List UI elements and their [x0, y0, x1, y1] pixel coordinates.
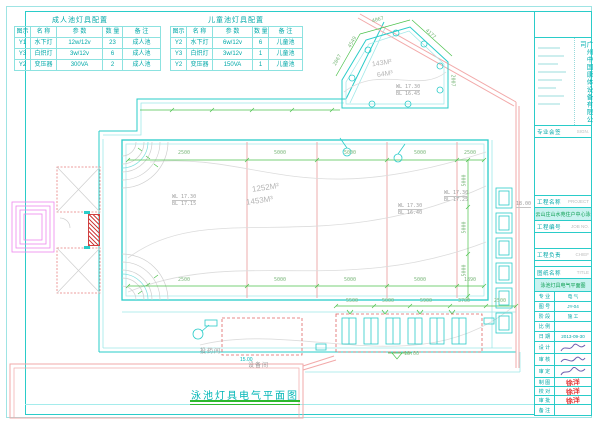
table-cell: 成人池 [123, 49, 161, 60]
signature-label: 审 核 [535, 354, 555, 365]
table-cell: Y3 [171, 49, 187, 60]
dim-label: 5000 [274, 151, 286, 156]
table-cell: 儿童池 [269, 49, 303, 60]
table-cell: Y1 [15, 38, 31, 49]
signature-row: 设 计 [535, 342, 591, 354]
dim-label: 5500 [346, 299, 358, 304]
chief-label: 工程负责 [537, 251, 561, 259]
info-row: 日 期 2013-09-30 [535, 332, 591, 342]
table-cell: 6 [103, 49, 123, 60]
signature-label: 设 计 [535, 342, 555, 353]
dim-label: 2500 [178, 278, 190, 283]
table-header: 参 数 [213, 27, 253, 38]
contour-lines [128, 72, 514, 346]
corner-arcs [122, 142, 168, 300]
dim-label: 5000 [382, 299, 394, 304]
water-level-label: WL 17.30BL 17.15 [172, 194, 196, 208]
info-value [555, 322, 591, 331]
table-cell: 成人池 [123, 38, 161, 49]
child-lighting-table: 图示 名 称 参 数 数 量 备 注 Y2 水下灯 6w/12v 6 儿童池 Y… [170, 26, 303, 71]
table-cell: Y2 [15, 60, 31, 71]
drawing-title-en: TITLE [577, 270, 589, 275]
title-block: 广州中国康体设备有限公司 专业会签 SIGN. 工程名称 PROJECT 白云山… [534, 11, 592, 416]
drawing-name-value: 泳池灯具电气平面图 [535, 279, 591, 292]
job-no-label: 工程编号 [537, 223, 561, 231]
info-row: 图 号 JY-04 [535, 302, 591, 312]
job-no-en: JOB NO. [571, 224, 589, 229]
dim-label: 5000 [274, 278, 286, 283]
table-header: 备 注 [123, 27, 161, 38]
table-cell: 水下灯 [31, 38, 57, 49]
hatched-wall [88, 214, 100, 246]
table-cell: 6w/12v [213, 38, 253, 49]
job-no-row: 工程编号 JOB NO. [535, 221, 591, 233]
caption-underline [190, 400, 300, 402]
dim-label: 5000 [463, 221, 468, 233]
table-header: 名 称 [31, 27, 57, 38]
table-cell: 3w/12v [57, 49, 103, 60]
info-row: 专 业 电 气 [535, 292, 591, 302]
lane-joint-lines [247, 142, 457, 298]
stamp-label: 审 批 [535, 396, 555, 404]
table-cell: 12w/12v [57, 38, 103, 49]
table-cell: 水下灯 [187, 38, 213, 49]
table-cell: 23 [103, 38, 123, 49]
info-value: 施 工 [555, 312, 591, 321]
water-level-label: WL 17.30BL 16.45 [396, 84, 420, 98]
table-cell: 1 [253, 60, 269, 71]
sign-label: 专业会签 [537, 128, 561, 136]
table-cell: 1 [253, 49, 269, 60]
sign-row: 专业会签 SIGN. [535, 126, 591, 138]
stamp-row: 审 批 徐洋 [535, 396, 591, 405]
table-cell: 变压器 [187, 60, 213, 71]
signature-scribble [555, 366, 591, 377]
company-info-lines [535, 38, 575, 125]
table-cell: 成人池 [123, 60, 161, 71]
project-en: PROJECT [568, 199, 589, 204]
stamp-label: 校 对 [535, 387, 555, 395]
table-header: 备 注 [269, 27, 303, 38]
sign-en: SIGN. [577, 129, 589, 134]
table-cell: 150VA [213, 60, 253, 71]
child-table-title: 儿童池灯具配置 [208, 15, 264, 25]
cad-drawing-sheet: 成人池灯具配置 图示 名 称 参 数 数 量 备 注 Y1 水下灯 12w/12… [0, 0, 600, 424]
dim-label: 2007 [450, 74, 455, 86]
info-value: 电 气 [555, 292, 591, 301]
table-header: 名 称 [187, 27, 213, 38]
dim-label: 2500 [178, 151, 190, 156]
deck-level-right-label: 18.00 [516, 201, 531, 208]
table-cell: 白炽灯 [187, 49, 213, 60]
project-label: 工程名称 [537, 198, 561, 206]
drawing-title-label: 图纸名称 [537, 269, 561, 277]
underwater-light-symbols [193, 30, 443, 339]
dim-label: 5000 [463, 264, 468, 276]
table-header: 图示 [171, 27, 187, 38]
info-value: JY-04 [555, 302, 591, 311]
signature-scribble [555, 342, 591, 353]
table-cell: 3w/12v [213, 49, 253, 60]
deck-level-label: 18.00 [404, 352, 419, 357]
table-cell: 6 [253, 38, 269, 49]
info-label: 专 业 [535, 292, 555, 301]
main-pool-border [122, 140, 488, 300]
info-value: 2013-09-30 [555, 332, 591, 341]
table-cell: 儿童池 [269, 60, 303, 71]
info-label: 比 例 [535, 322, 555, 331]
note-label: 备 注 [535, 405, 555, 415]
shaft-outline [12, 202, 54, 252]
dim-label: 5900 [420, 299, 432, 304]
water-level-label: WL 17.30BL 16.40 [398, 203, 422, 217]
dim-label: 2500 [464, 151, 476, 156]
table-cell: 2 [103, 60, 123, 71]
info-label: 图 号 [535, 302, 555, 311]
water-level-label: WL 17.30BL 17.25 [444, 190, 468, 204]
table-header: 数 量 [253, 27, 269, 38]
project-name-value: 白云山庄山水苑住户中心泳池 [535, 208, 591, 221]
info-row: 比 例 [535, 322, 591, 332]
project-name-row: 工程名称 PROJECT [535, 196, 591, 208]
company-name: 广州中国康体设备有限公司 [575, 38, 591, 125]
dosing-room-label: 投药间 [200, 346, 221, 355]
empty-box [535, 138, 591, 196]
caption-underline [190, 404, 300, 405]
red-stamp: 徐洋 [566, 396, 581, 404]
chief-en: CHIEF [576, 252, 590, 257]
signature-label: 审 定 [535, 366, 555, 377]
dim-label: 5000 [414, 151, 426, 156]
table-cell: 白炽灯 [31, 49, 57, 60]
signature-scribble [555, 354, 591, 365]
dim-label: 5000 [344, 278, 356, 283]
drawing-title-row: 图纸名称 TITLE [535, 267, 591, 279]
table-cell: 变压器 [31, 60, 57, 71]
red-stamp: 徐洋 [566, 378, 581, 386]
info-row: 阶 段 施 工 [535, 312, 591, 322]
info-label: 日 期 [535, 332, 555, 341]
empty-box [535, 233, 591, 249]
dim-label: 5000 [463, 174, 468, 186]
table-header: 图示 [15, 27, 31, 38]
signature-row: 审 定 [535, 366, 591, 378]
chief-row: 工程负责 CHIEF [535, 249, 591, 261]
signature-row: 审 核 [535, 354, 591, 366]
table-cell: Y2 [171, 60, 187, 71]
info-label: 阶 段 [535, 312, 555, 321]
stamp-row: 制 图 徐洋 [535, 378, 591, 387]
adult-table-title: 成人池灯具配置 [52, 15, 108, 25]
table-cell: 300VA [57, 60, 103, 71]
stamp-label: 制 图 [535, 378, 555, 386]
equipment-room-units [205, 314, 494, 355]
dim-label: 3700 [458, 299, 470, 304]
adult-lighting-table: 图示 名 称 参 数 数 量 备 注 Y1 水下灯 12w/12v 23 成人池… [14, 26, 161, 71]
table-header: 参 数 [57, 27, 103, 38]
stamp-row: 校 对 徐洋 [535, 387, 591, 396]
table-cell: Y2 [171, 38, 187, 49]
bench-units [496, 188, 512, 333]
title-block-logo-box [535, 12, 591, 38]
dim-label: 5000 [414, 278, 426, 283]
dim-label: 2500 [494, 299, 506, 304]
dim-label: 5000 [344, 151, 356, 156]
company-section: 广州中国康体设备有限公司 [535, 38, 591, 126]
equipment-room-label: 设备间 [248, 360, 269, 369]
table-cell: 儿童池 [269, 38, 303, 49]
note-row: 备 注 [535, 405, 591, 415]
red-stamp: 徐洋 [566, 387, 581, 395]
dim-label: 1890 [464, 278, 476, 283]
table-header: 数 量 [103, 27, 123, 38]
table-cell: Y3 [15, 49, 31, 60]
